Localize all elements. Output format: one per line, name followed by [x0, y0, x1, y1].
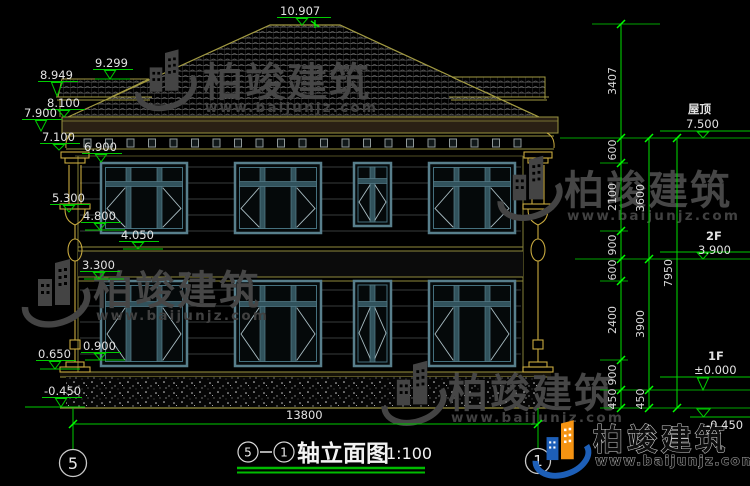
elevation-label: 10.907: [280, 4, 320, 18]
elevation-label: 5.300: [52, 191, 85, 205]
dim-label: 600: [606, 260, 619, 281]
level-value: ±0.000: [694, 363, 737, 377]
dim-label: 7950: [662, 259, 675, 287]
brand-logo: 柏竣建筑 www.baijunjz.com: [535, 420, 750, 476]
dim-label: 450: [634, 389, 647, 410]
elevation-label: 6.900: [84, 140, 117, 154]
window-1f-c: [354, 281, 391, 366]
elevation-label: 4.800: [83, 209, 116, 223]
dim-label: 3407: [606, 67, 619, 95]
brand-logo-icon: [535, 420, 588, 476]
window-1f-d: [429, 281, 515, 366]
elevation-label: 4.050: [121, 228, 154, 242]
elevation-label: 9.299: [95, 56, 128, 70]
elevation-label: 8.949: [40, 68, 73, 82]
dim-label: 600: [606, 140, 619, 161]
dim-label: 2400: [606, 306, 619, 334]
dim-label: 900: [606, 235, 619, 256]
dim-label: 3900: [634, 310, 647, 338]
title-axis-number: 1: [280, 446, 288, 460]
eave-fascia: [62, 117, 558, 133]
elevation-label: 3.300: [82, 258, 115, 272]
elevation-drawing: 柏竣建筑 www.baijunjz.com 柏竣建筑 www.baijunjz.…: [0, 0, 750, 486]
axis-number: 5: [68, 454, 78, 473]
dentil-row: [84, 139, 521, 147]
dim-label: 3600: [634, 184, 647, 212]
elevation-label: -0.450: [44, 384, 81, 398]
dim-label: 2100: [606, 183, 619, 211]
watermark-url: www.baijunjz.com: [205, 100, 378, 116]
watermark-url: www.baijunjz.com: [96, 308, 269, 324]
level-name: 2F: [706, 229, 722, 243]
watermark-url: www.baijunjz.com: [567, 208, 740, 224]
window-2f-d: [429, 163, 515, 233]
window-2f-b: [235, 163, 321, 233]
window-2f-c: [354, 163, 391, 226]
title-scale: 1:100: [386, 444, 432, 463]
dim-label: 450: [606, 389, 619, 410]
cad-elevation-canvas: 柏竣建筑 www.baijunjz.com 柏竣建筑 www.baijunjz.…: [0, 0, 750, 486]
brand-logo-url: www.baijunjz.com: [595, 453, 750, 469]
title-text: 轴立面图: [297, 440, 389, 467]
drawing-title: 5 1 轴立面图 1:100: [237, 440, 432, 473]
elevation-label: 0.900: [83, 339, 116, 353]
title-axis-number: 5: [244, 446, 252, 460]
elevation-label: 7.100: [42, 130, 75, 144]
level-value: 3.900: [698, 243, 731, 257]
level-name: 屋顶: [688, 102, 711, 116]
elevation-label: 0.650: [38, 347, 71, 361]
level-name: 1F: [708, 349, 724, 363]
level-value: 7.500: [686, 117, 719, 131]
elevation-label: 7.900: [24, 106, 57, 120]
dim-label: 900: [606, 365, 619, 386]
overall-width-label: 13800: [286, 408, 323, 422]
